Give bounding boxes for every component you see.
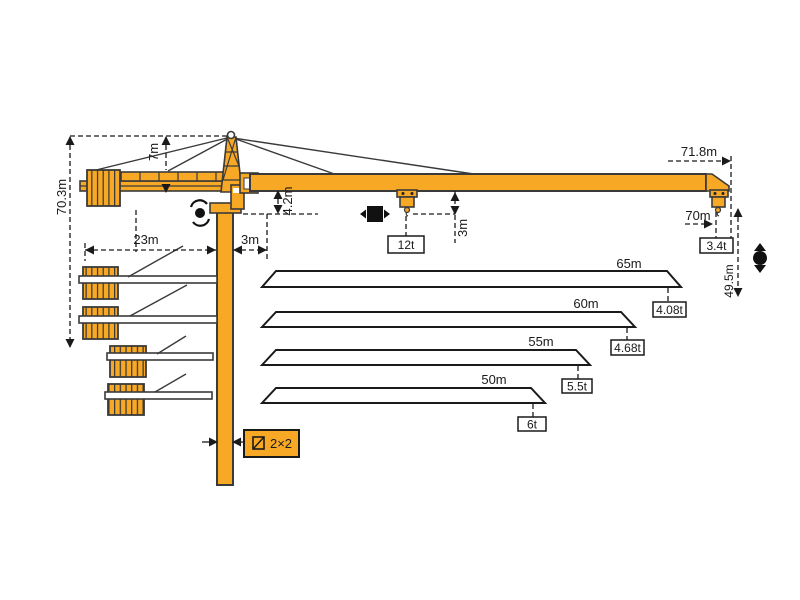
tip-load-label: 3.4t [706, 239, 727, 253]
mast [217, 212, 233, 485]
tip-hook-block [712, 197, 725, 207]
counter-jib [80, 170, 233, 206]
hook-clearance-label: 3m [455, 219, 470, 237]
jib-profile-60m [262, 312, 635, 327]
hook-radius-label: 70m [685, 208, 710, 223]
capacity-label-65m: 4.08t [656, 303, 683, 317]
counter-jib-radius-label: 23m [133, 232, 158, 247]
main-jib [240, 173, 729, 193]
ballast-row-3 [107, 336, 213, 377]
jib-profile-55m [262, 350, 590, 365]
mid-hook-block [400, 197, 414, 207]
apex-pulley [228, 132, 235, 139]
capacity-label-50m: 6t [527, 418, 538, 432]
ballast-row-1 [79, 246, 217, 299]
dim-rear-offset: 3m [233, 214, 267, 259]
jib-option-55m: 55m 5.5t [262, 334, 592, 394]
jib-depth-label: 4.2m [280, 187, 295, 216]
jib-option-60m: 60m 4.68t [262, 296, 644, 355]
ballast-row-4 [105, 374, 212, 415]
dim-hook-clearance: 3m [413, 191, 470, 243]
rear-offset-label: 3m [241, 232, 259, 247]
tip-trolley [710, 190, 728, 216]
tower-head-height-label: 7m [146, 143, 161, 161]
jib-tip [706, 174, 729, 191]
mid-hook [405, 208, 410, 213]
dim-hook-radius: 70m [685, 208, 713, 229]
jib-profile-50m [262, 388, 545, 403]
hook-height-label: 49.5m [722, 264, 736, 297]
hoist-up-down-icon [753, 243, 767, 273]
tip-hook [716, 208, 721, 213]
max-radius-label: 71.8m [681, 144, 717, 159]
jib-profile-65m [262, 271, 681, 287]
capacity-label-55m: 5.5t [567, 380, 588, 394]
jib-option-65m: 65m 4.08t [262, 256, 686, 317]
jib-option-50m: 50m 6t [262, 372, 546, 432]
max-load-callout: 12t [388, 216, 424, 253]
jib-length-label-55m: 55m [528, 334, 553, 349]
mast-section-label: 2×2 [270, 436, 292, 451]
capacity-label-60m: 4.68t [614, 341, 641, 355]
total-height-label: 70.3m [54, 179, 69, 215]
slew-rotation-icon [191, 200, 209, 225]
crane-load-diagram: 70.3m 7m 23m 3m 4.2m 3m [0, 0, 800, 600]
jib-length-label-65m: 65m [616, 256, 641, 271]
jib-length-label-50m: 50m [481, 372, 506, 387]
dim-counter-jib-radius: 23m [85, 210, 216, 261]
trolley-travel-icon [360, 206, 390, 222]
jib-length-label-60m: 60m [573, 296, 598, 311]
counterweight-slabs [87, 170, 120, 206]
max-load-label: 12t [398, 238, 415, 252]
mid-trolley [397, 190, 417, 216]
